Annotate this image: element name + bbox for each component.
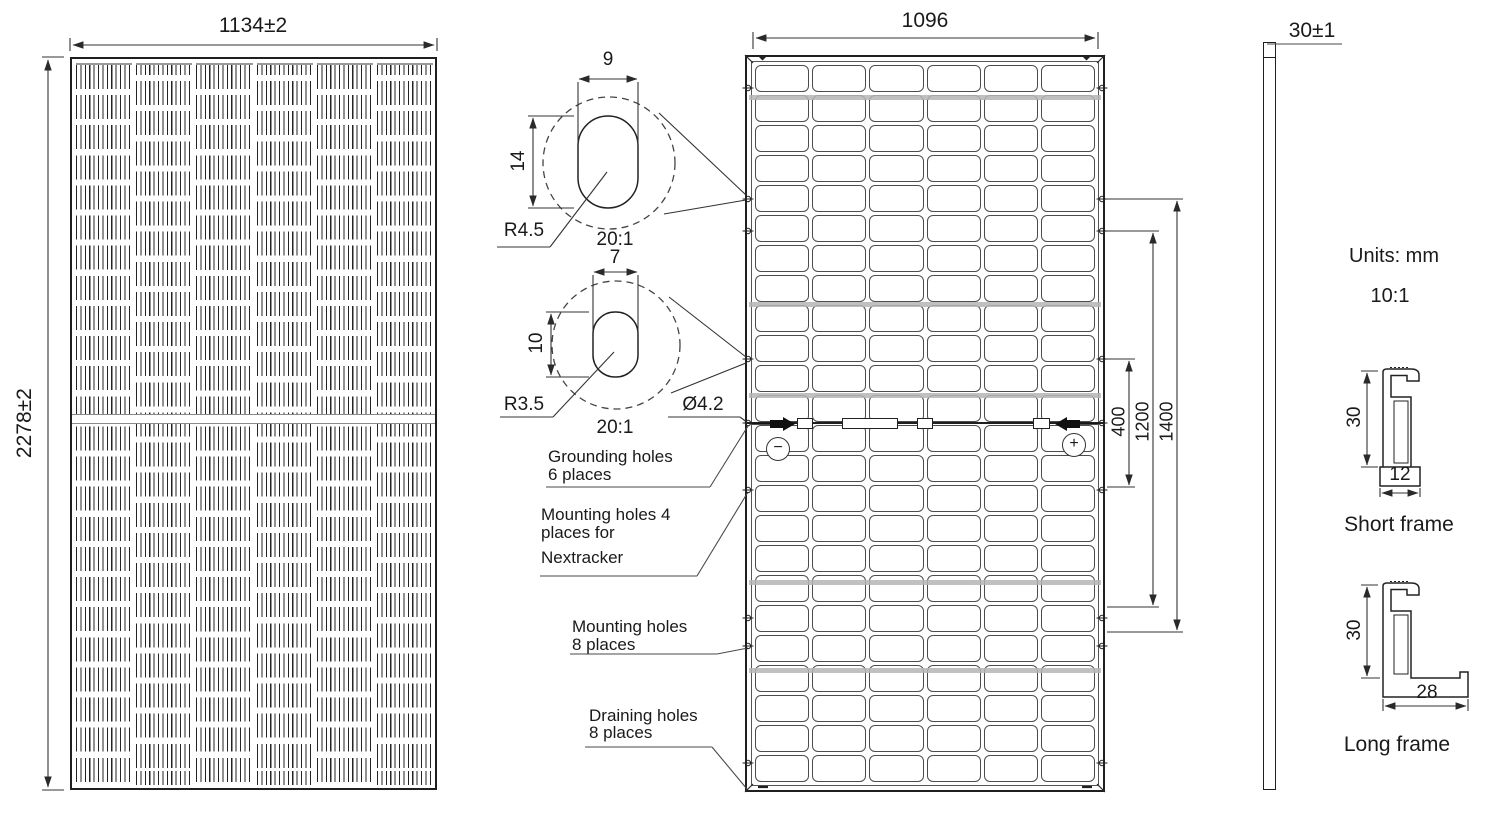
back-cell bbox=[755, 365, 809, 392]
back-cell bbox=[869, 155, 923, 182]
back-view-panel: − + bbox=[745, 55, 1105, 792]
hole-spacing-outer-dim: 1400 bbox=[1157, 392, 1176, 452]
back-cell bbox=[1041, 725, 1095, 752]
back-cell bbox=[812, 185, 866, 212]
back-cell bbox=[755, 125, 809, 152]
back-cell bbox=[1041, 695, 1095, 722]
back-cell bbox=[869, 605, 923, 632]
side-view-panel bbox=[1263, 42, 1276, 790]
grounding-slot-width-dim: 7 bbox=[595, 248, 635, 268]
back-cell bbox=[927, 755, 981, 782]
back-cell bbox=[755, 305, 809, 332]
back-cell bbox=[927, 695, 981, 722]
hole-spacing-middle-dim: 1200 bbox=[1133, 392, 1152, 452]
back-cell bbox=[927, 545, 981, 572]
back-cell bbox=[984, 125, 1038, 152]
grounding-hole-diameter-dim: Ø4.2 bbox=[668, 395, 738, 415]
side-view-frame-cap bbox=[1264, 57, 1275, 58]
front-cell-column bbox=[76, 63, 132, 785]
hole-spacing-inner-dim: 400 bbox=[1109, 392, 1128, 452]
back-cell bbox=[984, 215, 1038, 242]
back-cell bbox=[812, 635, 866, 662]
mounting-slot-height-dim: 14 bbox=[509, 141, 529, 181]
mounting-callout-line1: Mounting holes bbox=[572, 618, 687, 636]
back-cell bbox=[755, 515, 809, 542]
back-cell bbox=[984, 455, 1038, 482]
back-cell bbox=[812, 155, 866, 182]
back-cell bbox=[927, 455, 981, 482]
back-cell bbox=[755, 215, 809, 242]
side-thickness-dim: 30±1 bbox=[1272, 20, 1352, 42]
back-cell bbox=[1041, 335, 1095, 362]
back-cell bbox=[927, 155, 981, 182]
front-cell-column bbox=[257, 63, 313, 785]
back-cell bbox=[984, 65, 1038, 92]
back-cell bbox=[1041, 155, 1095, 182]
back-cell bbox=[927, 185, 981, 212]
front-middle-gap bbox=[72, 414, 435, 424]
short-frame-label: Short frame bbox=[1329, 514, 1469, 536]
back-cell bbox=[1041, 635, 1095, 662]
back-cell bbox=[927, 305, 981, 332]
back-cell bbox=[755, 755, 809, 782]
back-cell bbox=[869, 635, 923, 662]
back-cell bbox=[755, 155, 809, 182]
back-cell bbox=[1041, 455, 1095, 482]
back-cell bbox=[984, 755, 1038, 782]
back-cell bbox=[812, 425, 866, 452]
back-cell bbox=[927, 605, 981, 632]
back-cell bbox=[755, 245, 809, 272]
back-cell bbox=[869, 515, 923, 542]
back-cell bbox=[1041, 755, 1095, 782]
string-ribbon-band bbox=[749, 668, 1101, 673]
back-cell bbox=[869, 305, 923, 332]
back-cell bbox=[812, 455, 866, 482]
draining-callout-line2: 8 places bbox=[589, 724, 652, 742]
back-cell bbox=[927, 395, 981, 422]
back-cell bbox=[927, 365, 981, 392]
back-cell bbox=[812, 545, 866, 572]
back-cell bbox=[984, 515, 1038, 542]
back-cell bbox=[927, 635, 981, 662]
units-note: Units: mm bbox=[1334, 246, 1454, 267]
junction-box bbox=[917, 418, 933, 429]
back-cell bbox=[755, 65, 809, 92]
engineering-drawing: − + bbox=[0, 0, 1490, 828]
junction-box bbox=[797, 418, 813, 429]
back-cell bbox=[812, 305, 866, 332]
back-cell bbox=[927, 275, 981, 302]
back-cell bbox=[755, 275, 809, 302]
front-cell-column bbox=[317, 63, 373, 785]
back-cell bbox=[1041, 515, 1095, 542]
back-cell bbox=[812, 755, 866, 782]
back-cell bbox=[1041, 185, 1095, 212]
back-cell bbox=[984, 425, 1038, 452]
back-cell bbox=[984, 545, 1038, 572]
back-cell bbox=[927, 245, 981, 272]
long-frame-height-dim: 30 bbox=[1345, 610, 1365, 650]
nextracker-callout-line2: places for bbox=[541, 524, 615, 542]
back-cell bbox=[812, 335, 866, 362]
long-frame-label: Long frame bbox=[1327, 734, 1467, 756]
back-cell bbox=[984, 395, 1038, 422]
back-cell bbox=[984, 245, 1038, 272]
grounding-callout-line2: 6 places bbox=[548, 466, 611, 484]
short-frame-width-dim: 12 bbox=[1380, 465, 1420, 485]
mounting-callout-line2: 8 places bbox=[572, 636, 635, 654]
back-cell bbox=[984, 305, 1038, 332]
back-cell bbox=[812, 125, 866, 152]
back-cell bbox=[927, 485, 981, 512]
back-cell bbox=[755, 695, 809, 722]
back-cell bbox=[755, 725, 809, 752]
front-cell-grid bbox=[76, 63, 433, 785]
long-frame-profile bbox=[1383, 582, 1468, 698]
front-width-dim: 1134±2 bbox=[193, 15, 313, 37]
front-cell-column bbox=[196, 63, 252, 785]
back-cell bbox=[869, 215, 923, 242]
back-cell bbox=[869, 425, 923, 452]
back-cell bbox=[869, 335, 923, 362]
back-cell bbox=[812, 215, 866, 242]
back-cell bbox=[984, 155, 1038, 182]
back-cell bbox=[812, 515, 866, 542]
front-view-panel bbox=[70, 57, 437, 790]
string-ribbon-band bbox=[749, 580, 1101, 585]
back-cell bbox=[984, 725, 1038, 752]
junction-box-center bbox=[842, 418, 898, 429]
back-cell bbox=[927, 425, 981, 452]
back-cell bbox=[984, 695, 1038, 722]
back-cell bbox=[927, 125, 981, 152]
grounding-slot-scale: 20:1 bbox=[585, 418, 645, 438]
back-cell bbox=[869, 275, 923, 302]
back-cell bbox=[927, 515, 981, 542]
short-frame-height-dim: 30 bbox=[1345, 397, 1365, 437]
back-cell bbox=[984, 365, 1038, 392]
back-cell bbox=[869, 65, 923, 92]
back-cell bbox=[869, 545, 923, 572]
mounting-slot-radius-dim: R4.5 bbox=[494, 221, 554, 241]
long-frame-width-dim: 28 bbox=[1407, 683, 1447, 703]
back-cell bbox=[869, 725, 923, 752]
back-cell bbox=[927, 335, 981, 362]
back-cell bbox=[1041, 245, 1095, 272]
back-cell bbox=[755, 605, 809, 632]
terminal-positive-icon: + bbox=[1062, 433, 1086, 457]
back-cell bbox=[927, 65, 981, 92]
back-cell bbox=[984, 635, 1038, 662]
grounding-slot-radius-dim: R3.5 bbox=[494, 395, 554, 415]
back-cell bbox=[869, 755, 923, 782]
back-cell bbox=[1041, 215, 1095, 242]
back-cell bbox=[812, 485, 866, 512]
front-cell-column bbox=[136, 63, 192, 785]
back-cell bbox=[812, 695, 866, 722]
front-height-dim: 2278±2 bbox=[14, 363, 36, 483]
back-cell bbox=[1041, 545, 1095, 572]
string-ribbon-band bbox=[749, 393, 1101, 398]
string-ribbon-band bbox=[749, 302, 1101, 307]
back-cell bbox=[812, 605, 866, 632]
back-cell bbox=[755, 185, 809, 212]
back-cell bbox=[755, 635, 809, 662]
grounding-slot-height-dim: 10 bbox=[527, 323, 547, 363]
back-cell bbox=[927, 215, 981, 242]
scale-note: 10:1 bbox=[1330, 286, 1450, 307]
back-cell bbox=[984, 605, 1038, 632]
back-cell bbox=[1041, 485, 1095, 512]
back-cell bbox=[812, 275, 866, 302]
back-cell bbox=[869, 125, 923, 152]
back-cell bbox=[869, 365, 923, 392]
mounting-slot-width-dim: 9 bbox=[588, 50, 628, 70]
front-cell-column bbox=[377, 63, 433, 785]
back-cell bbox=[869, 245, 923, 272]
back-cell bbox=[1041, 365, 1095, 392]
back-cell bbox=[869, 455, 923, 482]
back-cell bbox=[812, 245, 866, 272]
nextracker-callout-line1: Mounting holes 4 bbox=[541, 506, 670, 524]
back-cell bbox=[1041, 65, 1095, 92]
back-cell bbox=[984, 185, 1038, 212]
back-cell bbox=[984, 275, 1038, 302]
string-ribbon-band bbox=[749, 95, 1101, 100]
back-cell bbox=[755, 545, 809, 572]
junction-box bbox=[1033, 418, 1050, 429]
terminal-negative-icon: − bbox=[766, 437, 790, 461]
back-cell bbox=[869, 185, 923, 212]
nextracker-callout-line3: Nextracker bbox=[541, 549, 623, 567]
back-cell bbox=[1041, 605, 1095, 632]
back-cell bbox=[869, 695, 923, 722]
back-width-dim: 1096 bbox=[875, 10, 975, 32]
back-cell bbox=[984, 335, 1038, 362]
back-cell bbox=[869, 485, 923, 512]
back-cell bbox=[927, 725, 981, 752]
grounding-callout-line1: Grounding holes bbox=[548, 448, 673, 466]
back-cell bbox=[984, 485, 1038, 512]
back-cell bbox=[755, 335, 809, 362]
back-cell bbox=[1041, 125, 1095, 152]
back-cell bbox=[1041, 305, 1095, 332]
back-cell bbox=[1041, 275, 1095, 302]
back-cell bbox=[812, 365, 866, 392]
back-cell bbox=[755, 485, 809, 512]
back-cell bbox=[812, 65, 866, 92]
back-cell bbox=[812, 725, 866, 752]
